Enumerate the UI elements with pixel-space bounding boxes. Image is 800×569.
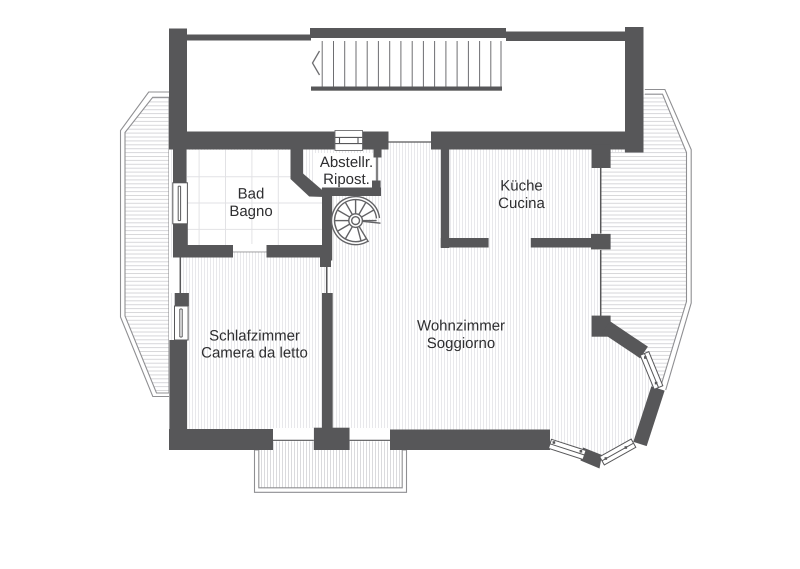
svg-text:Cucina: Cucina bbox=[498, 195, 545, 212]
svg-text:Ripost.: Ripost. bbox=[323, 171, 370, 188]
svg-text:Camera da letto: Camera da letto bbox=[201, 345, 308, 362]
svg-text:Abstellr.: Abstellr. bbox=[320, 154, 373, 171]
svg-text:Schlafzimmer: Schlafzimmer bbox=[209, 328, 300, 345]
svg-text:Wohnzimmer: Wohnzimmer bbox=[417, 318, 505, 335]
svg-text:Soggiorno: Soggiorno bbox=[427, 335, 495, 352]
svg-text:Bagno: Bagno bbox=[229, 203, 272, 220]
svg-text:Bad: Bad bbox=[238, 186, 265, 203]
svg-text:Küche: Küche bbox=[500, 178, 543, 195]
